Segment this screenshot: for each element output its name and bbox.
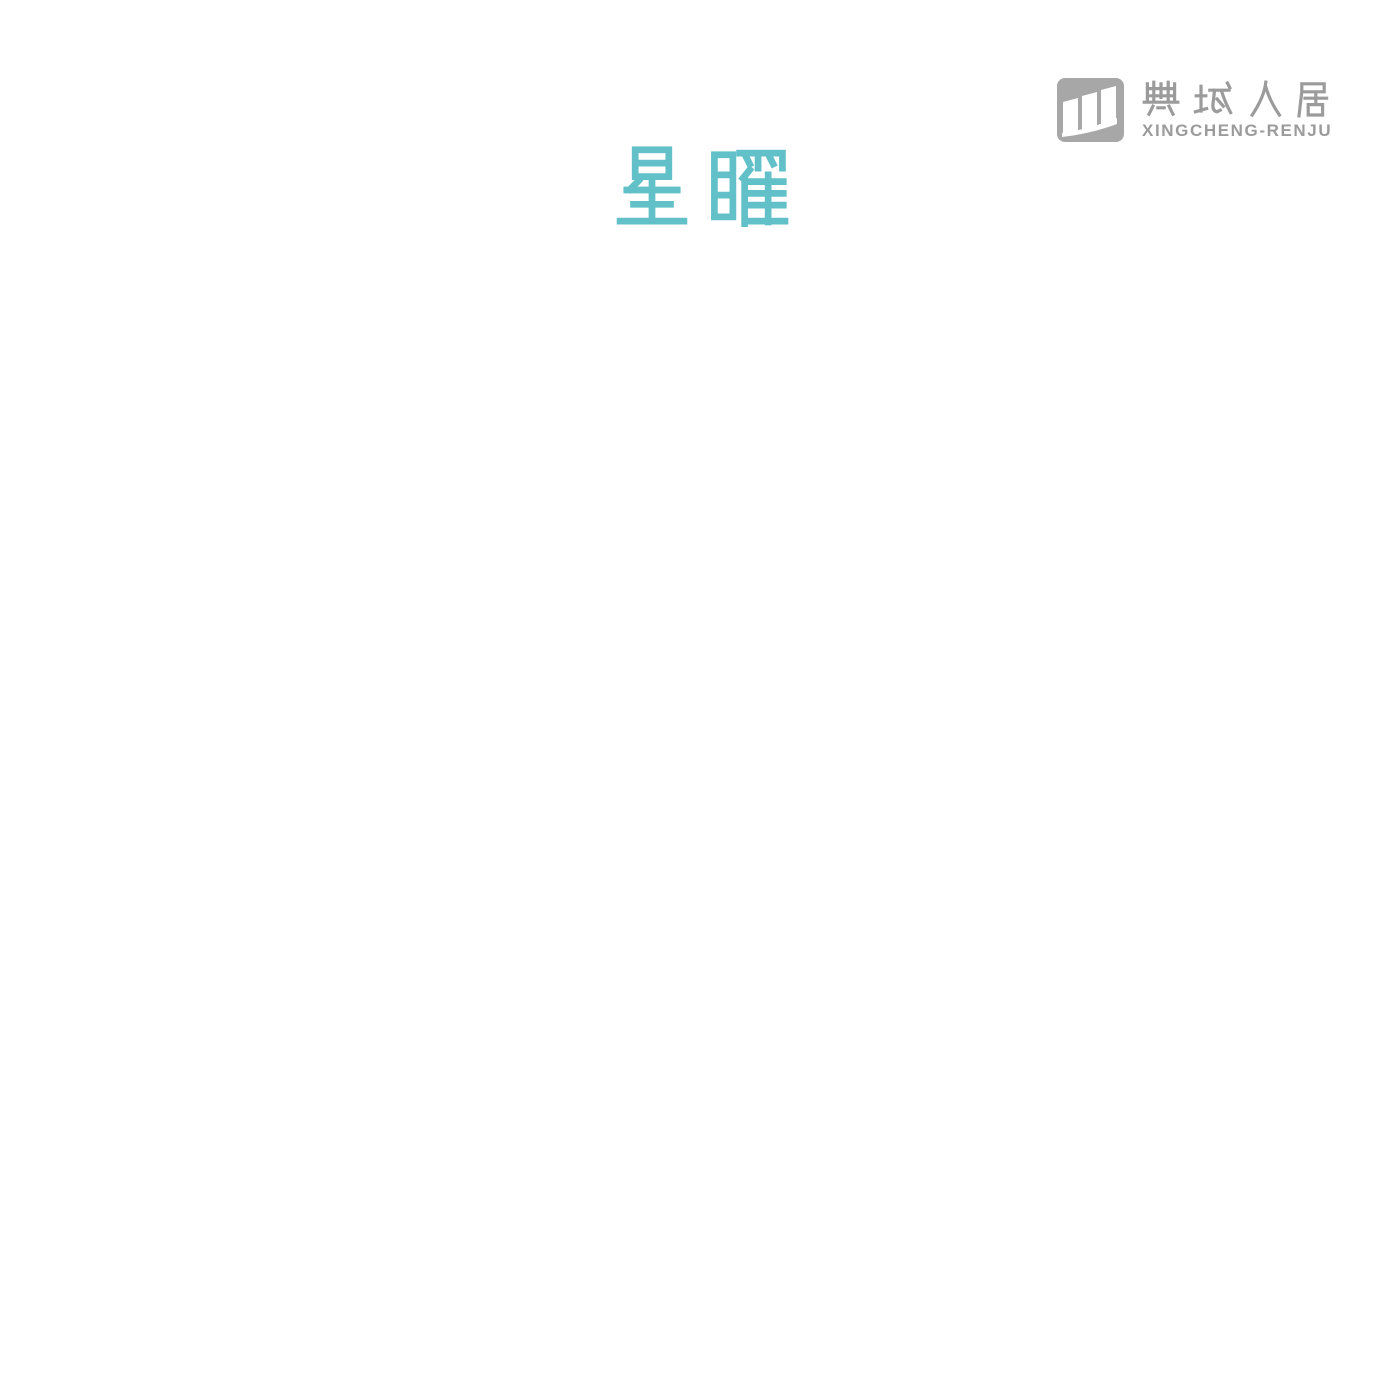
svg-text:XINGCHENG-RENJU: XINGCHENG-RENJU bbox=[1142, 121, 1332, 140]
